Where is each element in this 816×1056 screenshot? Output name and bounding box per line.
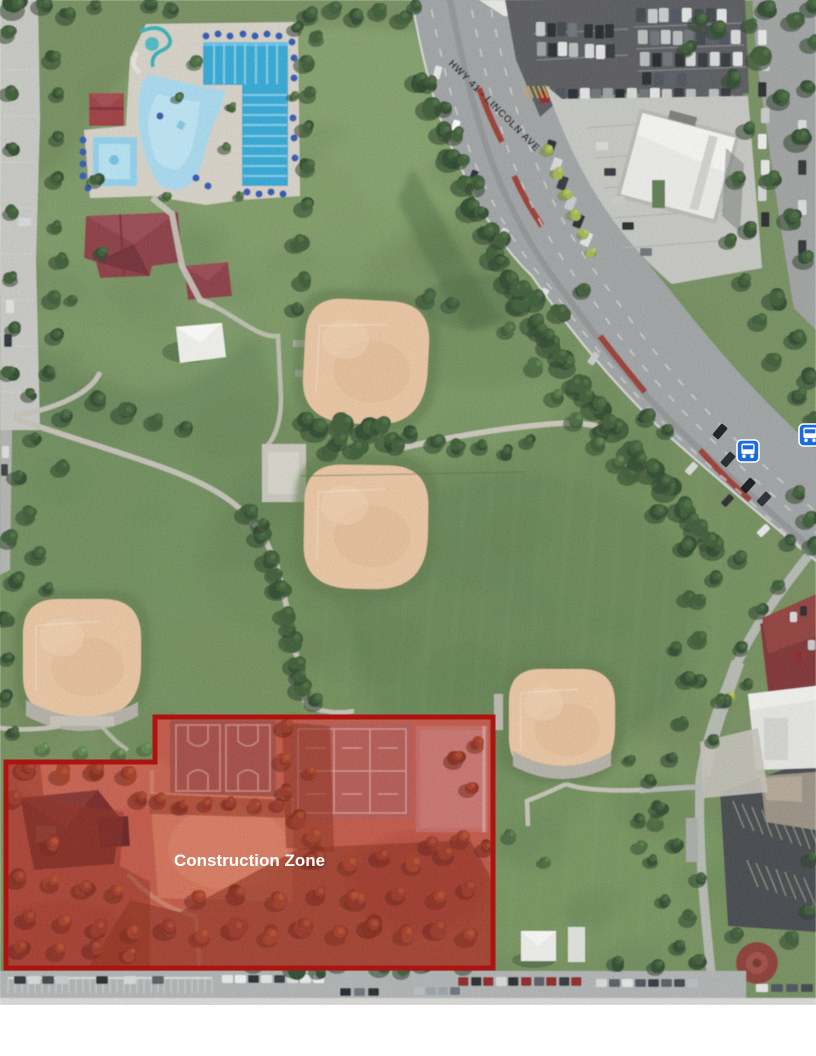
svg-text:Construction Zone: Construction Zone [174,851,325,870]
